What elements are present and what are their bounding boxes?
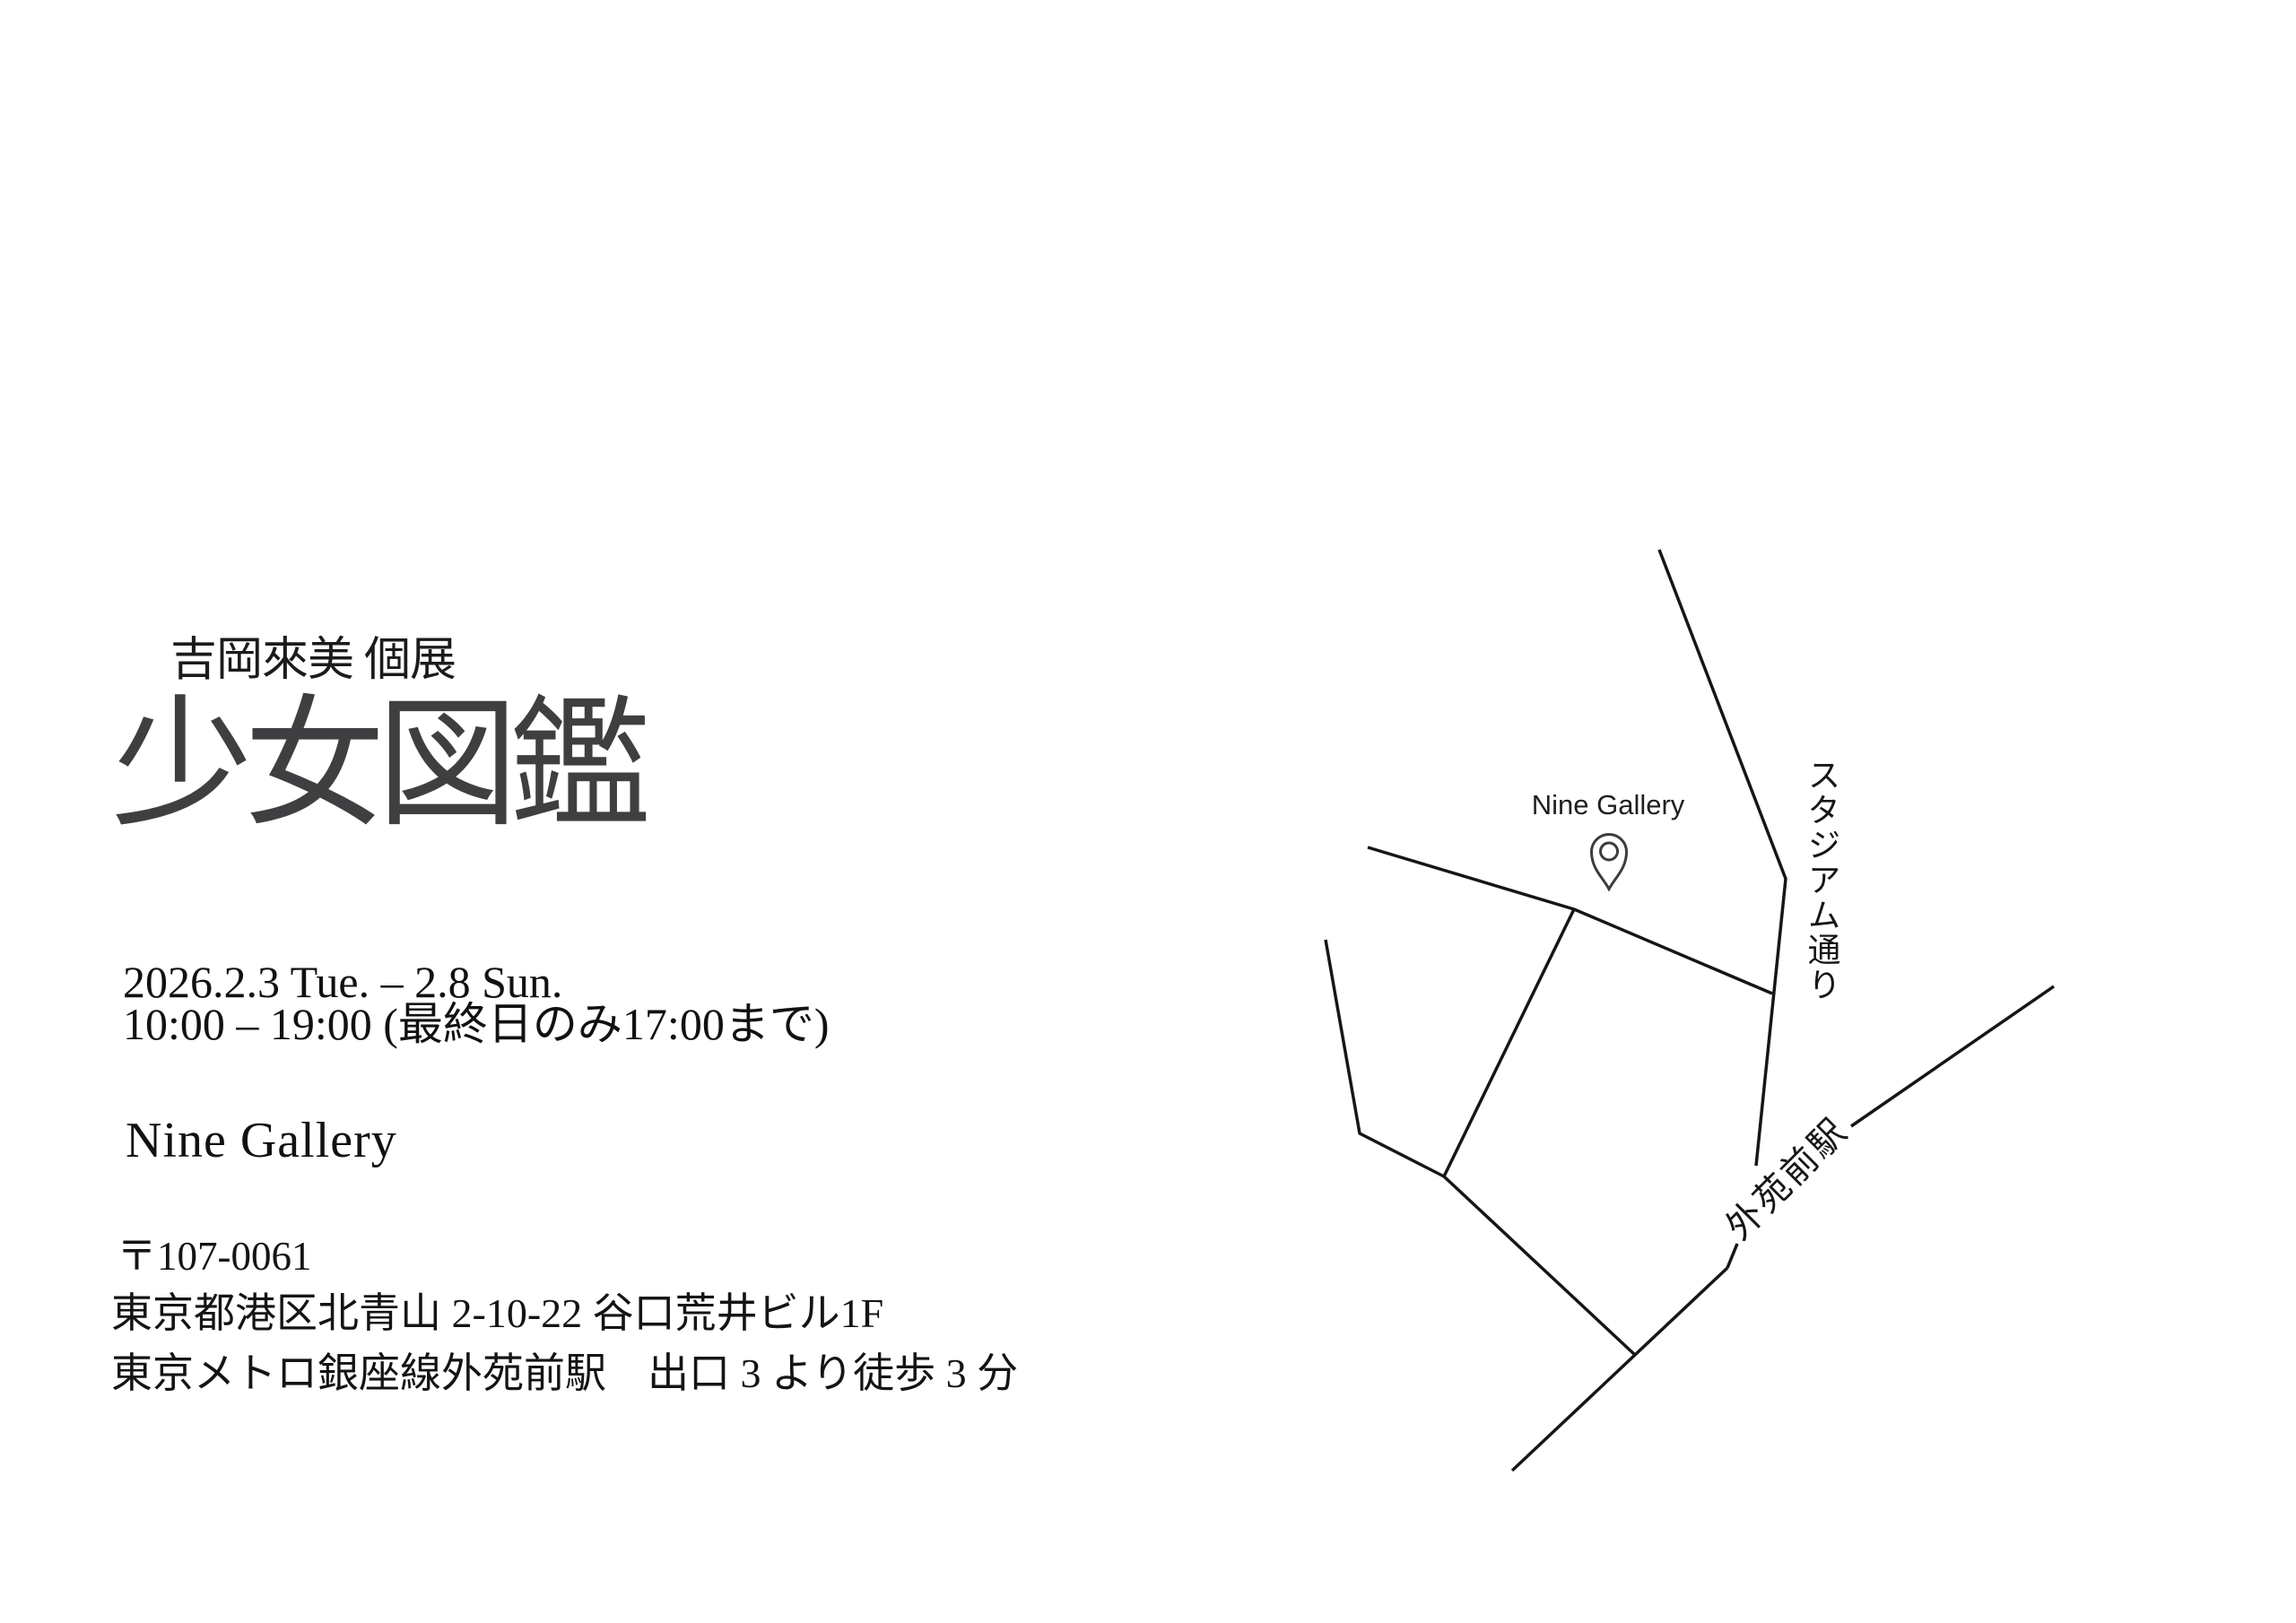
map-stadium-street-label: スタジアム通り [1796,758,1845,1018]
map-gallery-label: Nine Gallery [1532,789,1685,821]
road-stadium-street-stub [1727,1244,1737,1268]
road-branch-street [1444,909,1574,1176]
road-west-street [1326,940,1635,1355]
road-railway-lower [1512,1268,1727,1471]
map-roads [0,0,2296,1623]
exhibition-flyer: 吉岡來美 個展 少女図鑑 2026.2.3 Tue. – 2.8 Sun. 10… [0,0,2296,1623]
map-pin-icon [1589,830,1629,891]
road-railway-upper [1851,986,2054,1126]
road-stadium-street-upper [1659,550,1786,1166]
map-pin-inner-circle [1601,843,1618,860]
